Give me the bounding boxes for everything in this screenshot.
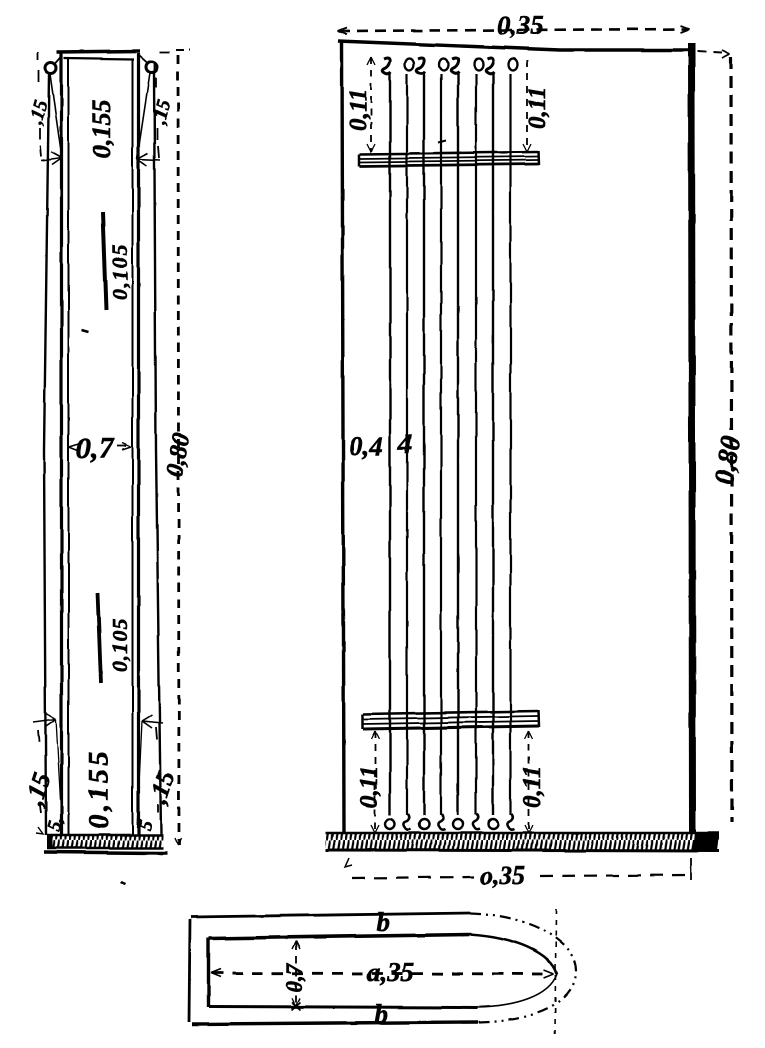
svg-text:0,155: 0,155 bbox=[83, 749, 115, 829]
svg-text:b: b bbox=[376, 907, 390, 937]
svg-text:4: 4 bbox=[397, 428, 413, 460]
svg-text:0,7: 0,7 bbox=[282, 962, 307, 992]
svg-text:0,11: 0,11 bbox=[519, 766, 546, 808]
svg-text:0,11: 0,11 bbox=[345, 89, 372, 131]
svg-text:o,35: o,35 bbox=[480, 861, 526, 890]
svg-text:0,4: 0,4 bbox=[349, 431, 383, 461]
svg-text:0,155: 0,155 bbox=[87, 100, 116, 159]
svg-text:0,7: 0,7 bbox=[76, 432, 115, 465]
svg-text:0,105: 0,105 bbox=[107, 618, 132, 673]
svg-text:0,11: 0,11 bbox=[524, 87, 551, 129]
svg-text:0,11: 0,11 bbox=[356, 766, 383, 808]
svg-text:0,105: 0,105 bbox=[107, 243, 132, 300]
svg-text:0,35: 0,35 bbox=[497, 10, 544, 40]
svg-text:b: b bbox=[374, 999, 388, 1029]
svg-text:a,35: a,35 bbox=[367, 957, 414, 987]
